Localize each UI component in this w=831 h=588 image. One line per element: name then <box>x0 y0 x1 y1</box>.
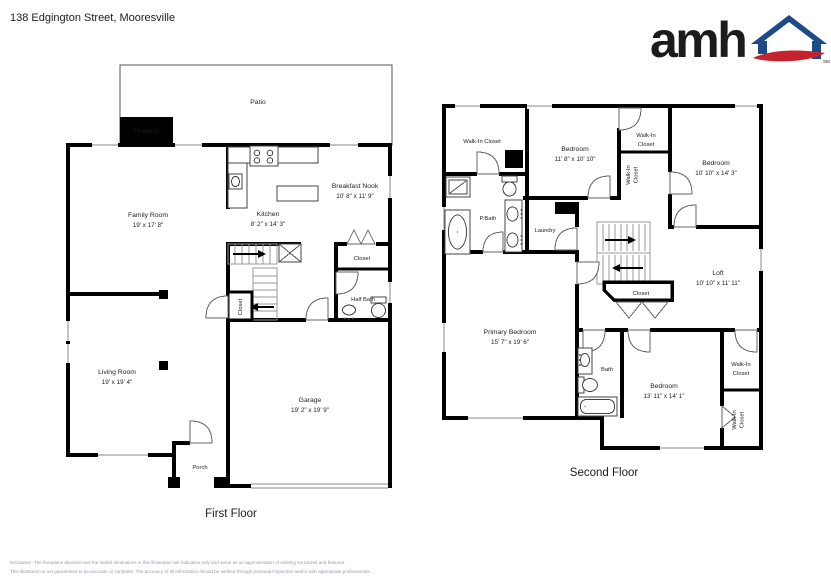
label-living-room: Living Room <box>98 369 136 376</box>
closet-bifold-door <box>616 302 668 318</box>
label-fireplace: Fireplace <box>134 129 159 135</box>
porch-post <box>214 477 226 488</box>
porch-post <box>168 477 180 488</box>
label-laundry: Laundry <box>535 228 556 234</box>
kitchen-counter-icon <box>228 146 318 208</box>
label-family-room-dims: 19' x 17' 8" <box>133 222 164 229</box>
label-closet: Closet <box>354 256 371 262</box>
label-kitchen-dims: 8' 2" x 14' 3" <box>251 221 286 228</box>
closet-bifold-door <box>347 230 375 244</box>
label-loft: Loft <box>712 270 723 277</box>
caption-second-floor: Second Floor <box>570 467 639 479</box>
label-porch: Porch <box>192 465 207 471</box>
label-garage: Garage <box>299 397 322 404</box>
sink-icon <box>343 305 356 320</box>
shower-icon <box>446 177 470 197</box>
label-breakfast-nook-dims: 10' 8" x 11' 9" <box>336 193 374 200</box>
wall-post <box>159 361 168 370</box>
label-patio: Patio <box>250 99 266 106</box>
pantry-cabinet-icon <box>279 244 301 262</box>
floorplan-first-floor: Patio Fireplace Family Room 19' x 17' 8"… <box>65 65 393 520</box>
label-primary-bedroom: Primary Bedroom <box>484 329 537 336</box>
label-walk-in-closet-mid-1: Walk-In <box>626 165 632 184</box>
sink-icon <box>578 348 592 374</box>
double-vanity-icon <box>505 200 522 252</box>
label-p-bath: P.Bath <box>480 216 497 222</box>
disclaimer-line-1: Disclaimer: The floorplans depicted and … <box>10 559 371 568</box>
label-walk-in-closet-nw: Walk-In Closet <box>463 139 501 145</box>
label-breakfast-nook: Breakfast Nook <box>332 183 379 190</box>
label-loft-dims: 10' 10" x 11' 11" <box>696 280 740 287</box>
label-bath: Bath <box>601 367 613 373</box>
label-walk-in-closet-e-1: Walk-In <box>731 362 750 368</box>
label-walk-in-closet-mid-2: Closet <box>634 166 640 183</box>
bathtub-icon <box>445 210 470 254</box>
label-kitchen: Kitchen <box>257 211 280 218</box>
wall-post <box>159 290 168 299</box>
toilet-icon <box>578 377 598 393</box>
label-walk-in-closet-s-1: Walk-In <box>732 410 738 429</box>
toilet-icon <box>502 176 517 196</box>
disclaimer-line-2: This illustration is not guaranteed to b… <box>10 568 371 577</box>
label-walk-in-closet-s-2: Closet <box>740 411 746 428</box>
label-bedroom-n-dims: 11' 8" x 10' 10" <box>554 156 595 163</box>
front-door <box>190 421 212 443</box>
floorplan-second-floor: Walk-In Closet Bedroom 11' 8" x 10' 10" … <box>441 103 764 479</box>
label-half-bath: Half Bath <box>351 297 375 303</box>
kitchen-island-icon <box>277 186 318 201</box>
disclaimer: Disclaimer: The floorplans depicted and … <box>10 559 371 576</box>
label-bedroom-n: Bedroom <box>561 146 589 153</box>
label-bedroom-se-dims: 13' 11" x 14' 1" <box>643 393 684 400</box>
stove-icon <box>250 146 278 166</box>
caption-first-floor: First Floor <box>205 508 257 520</box>
bathtub-icon <box>578 397 617 416</box>
hall-bath-fixtures <box>578 348 617 416</box>
label-family-room: Family Room <box>128 212 168 219</box>
label-primary-bedroom-dims: 15' 7" x 19' 6" <box>491 339 529 346</box>
label-walk-in-closet-n-1: Walk-In <box>636 133 655 139</box>
label-stair-closet: Closet <box>238 298 244 315</box>
floorplans-canvas: Patio Fireplace Family Room 19' x 17' 8"… <box>0 0 831 588</box>
label-walk-in-closet-n-2: Closet <box>638 142 655 148</box>
label-walk-in-closet-e-2: Closet <box>733 371 750 377</box>
label-bedroom-se: Bedroom <box>650 383 678 390</box>
primary-bath-fixtures <box>445 176 522 254</box>
label-living-room-dims: 19' x 19' 4" <box>102 379 133 386</box>
second-floor-stairs <box>597 222 650 284</box>
label-stair-closet-2f: Closet <box>633 291 650 297</box>
garage-door-line <box>251 484 388 488</box>
label-bedroom-ne: Bedroom <box>702 160 730 167</box>
floorplan-page: 138 Edgington Street, Mooresville amh SM <box>0 0 831 588</box>
label-garage-dims: 19' 2" x 19' 9" <box>291 407 329 414</box>
label-bedroom-ne-dims: 10' 10" x 14' 3" <box>695 170 737 177</box>
